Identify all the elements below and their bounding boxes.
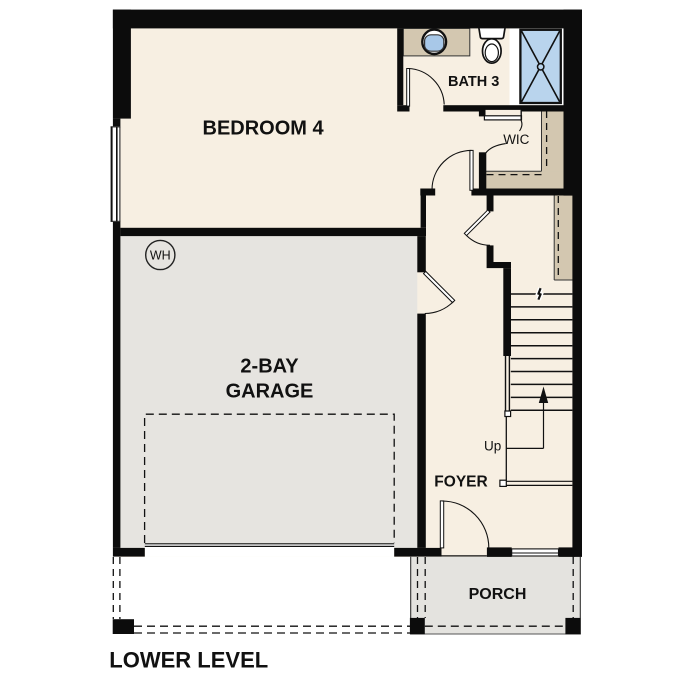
svg-text:WH: WH: [150, 248, 171, 262]
svg-text:FOYER: FOYER: [434, 473, 487, 490]
svg-text:WIC: WIC: [503, 132, 529, 147]
svg-text:GARAGE: GARAGE: [226, 381, 314, 403]
svg-text:2-BAY: 2-BAY: [240, 355, 299, 377]
svg-text:LOWER LEVEL: LOWER LEVEL: [109, 648, 268, 673]
svg-text:Up: Up: [484, 439, 501, 454]
svg-text:BATH 3: BATH 3: [448, 74, 499, 90]
svg-text:PORCH: PORCH: [469, 586, 527, 603]
svg-text:BEDROOM 4: BEDROOM 4: [203, 117, 325, 139]
